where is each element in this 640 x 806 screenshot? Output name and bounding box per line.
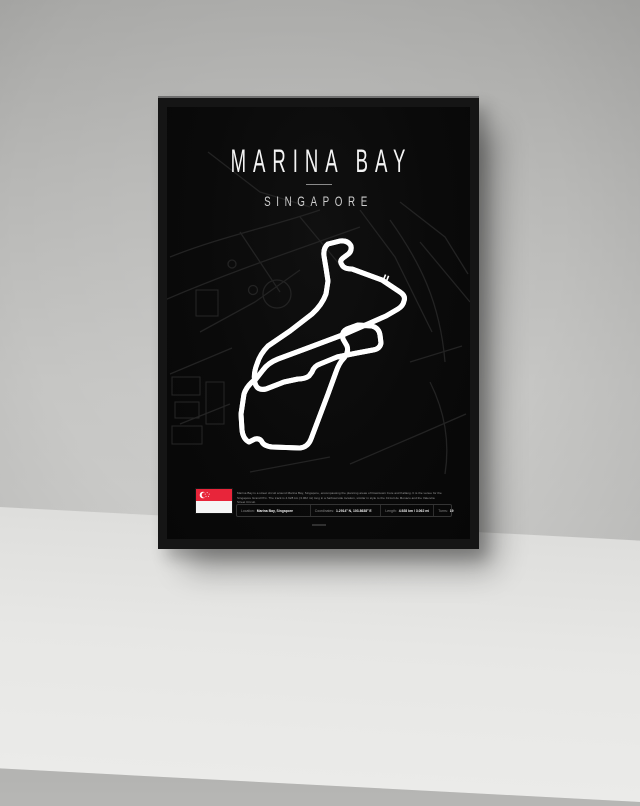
track-outline — [241, 241, 405, 448]
stat-coordinates-value: 1.2914° N, 103.8638° E — [336, 509, 372, 513]
poster-title: MARINA BAY — [231, 143, 407, 180]
stat-location: Location: Marina Bay, Singapore — [237, 505, 310, 516]
stat-length-value: 4.928 km / 3.062 mi — [399, 509, 430, 513]
footer-mark — [312, 524, 326, 526]
background-buildings — [172, 290, 224, 444]
stat-turns-value: 19 — [450, 509, 454, 513]
product-photo-scene: { "poster": { "title": "MARINA BAY", "su… — [0, 0, 640, 640]
poster-subtitle: SINGAPORE — [212, 193, 424, 209]
stat-turns-label: Turns: — [438, 509, 447, 513]
stat-turns: Turns: 19 — [433, 505, 457, 516]
title-divider — [306, 184, 332, 185]
singapore-flag — [196, 489, 232, 513]
stat-location-label: Location: — [241, 509, 255, 513]
picture-frame: MARINA BAY SINGAPORE Marina Bay is a str… — [158, 96, 479, 549]
stat-length-label: Length: — [385, 509, 396, 513]
poster: MARINA BAY SINGAPORE Marina Bay is a str… — [167, 107, 470, 539]
stat-coordinates-label: Coordinates: — [315, 509, 334, 513]
stat-coordinates: Coordinates: 1.2914° N, 103.8638° E — [310, 505, 381, 516]
circuit-description: Marina Bay is a street circuit around Ma… — [237, 491, 443, 505]
stat-length: Length: 4.928 km / 3.062 mi — [380, 505, 433, 516]
stats-bar: Location: Marina Bay, Singapore Coordina… — [236, 504, 452, 517]
stat-location-value: Marina Bay, Singapore — [257, 509, 293, 513]
